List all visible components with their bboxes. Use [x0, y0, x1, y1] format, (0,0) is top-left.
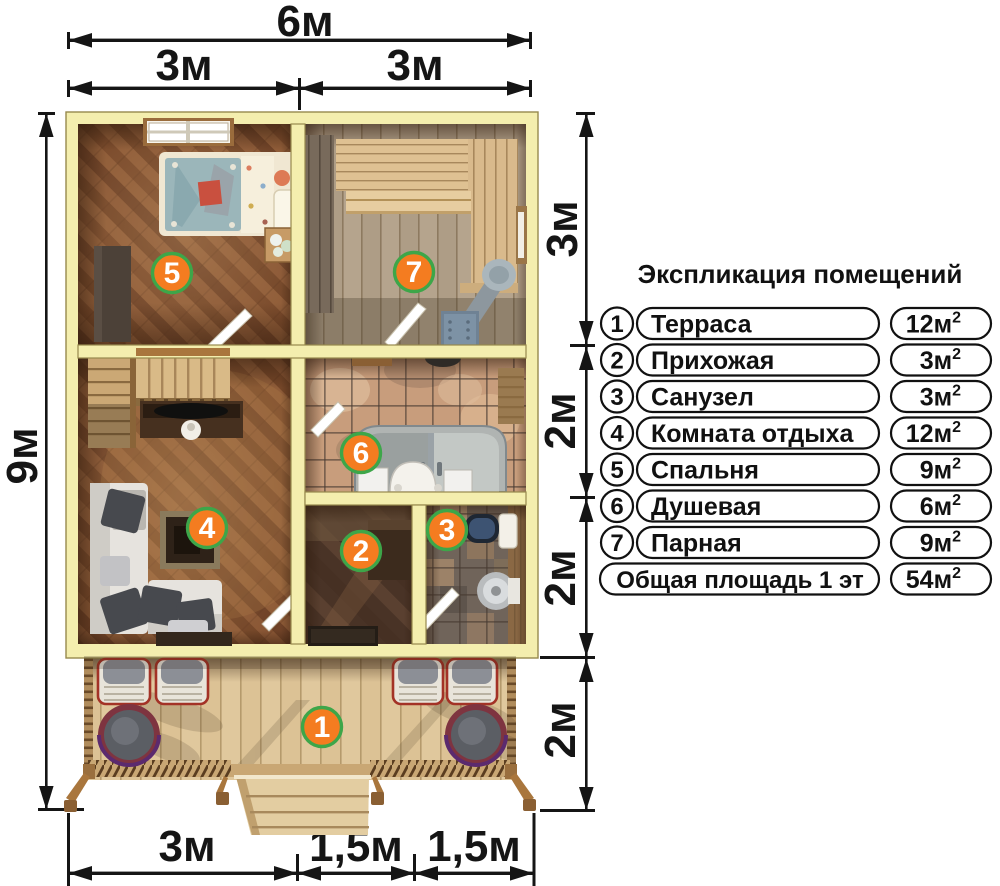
svg-text:Комната отдыха: Комната отдыха — [651, 420, 854, 448]
svg-text:3м: 3м — [158, 822, 215, 871]
svg-text:Прихожая: Прихожая — [651, 347, 774, 375]
svg-text:3: 3 — [439, 514, 456, 547]
svg-text:Экспликация помещений: Экспликация помещений — [638, 259, 963, 289]
svg-text:2м: 2м — [536, 549, 585, 606]
svg-text:3м: 3м — [386, 41, 443, 90]
svg-text:6: 6 — [610, 494, 623, 521]
svg-text:5: 5 — [610, 457, 623, 484]
svg-text:1: 1 — [610, 311, 623, 338]
svg-text:3: 3 — [610, 384, 623, 411]
svg-text:Санузел: Санузел — [651, 384, 754, 412]
svg-text:2: 2 — [610, 348, 623, 375]
svg-text:1: 1 — [314, 711, 331, 744]
svg-text:1,5м: 1,5м — [427, 822, 521, 871]
svg-text:5: 5 — [164, 257, 181, 290]
svg-text:7: 7 — [406, 256, 423, 289]
svg-text:2м: 2м — [536, 701, 585, 758]
svg-text:3м: 3м — [538, 200, 587, 257]
svg-text:Спальня: Спальня — [651, 457, 759, 485]
svg-text:3м: 3м — [155, 41, 212, 90]
svg-text:Терраса: Терраса — [651, 311, 753, 339]
svg-text:2м: 2м — [536, 392, 585, 449]
svg-text:6: 6 — [353, 437, 370, 470]
svg-text:Общая площадь 1 эт: Общая площадь 1 эт — [616, 567, 864, 594]
svg-text:4: 4 — [199, 512, 216, 545]
svg-text:9м: 9м — [0, 427, 47, 484]
svg-text:7: 7 — [610, 530, 623, 557]
svg-text:Душевая: Душевая — [651, 493, 761, 521]
svg-text:6м: 6м — [276, 0, 333, 46]
svg-text:2: 2 — [353, 535, 370, 568]
svg-text:Парная: Парная — [651, 530, 742, 558]
svg-text:4: 4 — [610, 421, 624, 448]
